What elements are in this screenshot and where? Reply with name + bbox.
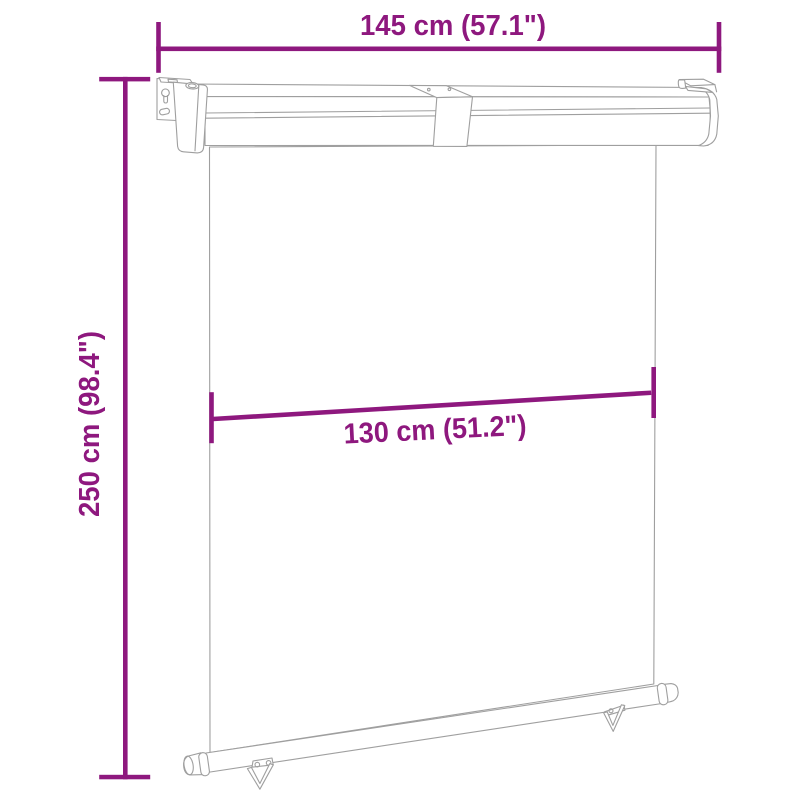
svg-text:145 cm (57.1"): 145 cm (57.1")	[360, 10, 546, 42]
svg-text:250 cm (98.4"): 250 cm (98.4")	[74, 331, 106, 517]
